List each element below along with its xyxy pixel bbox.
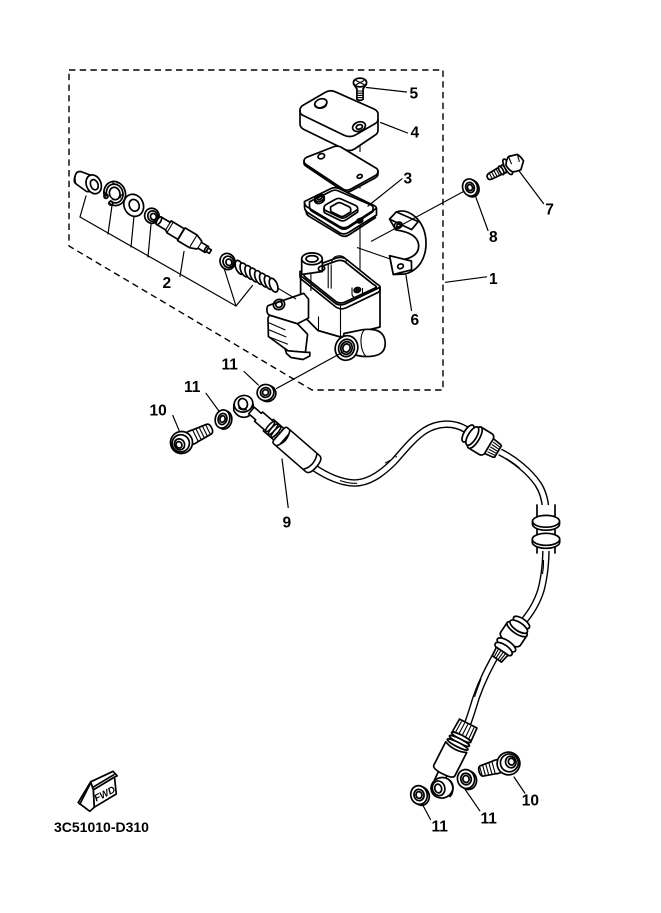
svg-text:11: 11	[222, 357, 239, 374]
svg-text:9: 9	[283, 515, 292, 532]
svg-text:11: 11	[184, 379, 201, 396]
svg-text:6: 6	[411, 312, 420, 329]
svg-text:10: 10	[522, 793, 539, 810]
svg-text:3: 3	[404, 171, 413, 188]
svg-text:3C51010-D310: 3C51010-D310	[54, 819, 149, 835]
svg-text:1: 1	[489, 271, 498, 288]
svg-text:4: 4	[411, 125, 420, 142]
svg-text:10: 10	[150, 403, 167, 420]
svg-text:11: 11	[432, 819, 449, 836]
svg-text:8: 8	[489, 229, 498, 246]
svg-text:11: 11	[481, 811, 498, 828]
svg-text:7: 7	[545, 202, 554, 219]
svg-text:5: 5	[410, 86, 419, 103]
svg-text:2: 2	[163, 275, 172, 292]
